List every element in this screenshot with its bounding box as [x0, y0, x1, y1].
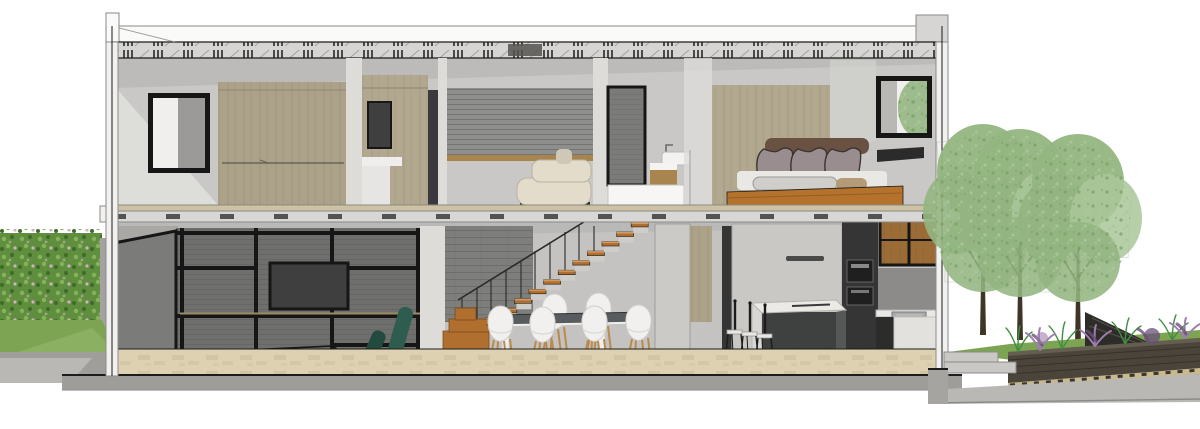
- tree-3: [1018, 134, 1142, 345]
- counter-niche: [878, 268, 936, 312]
- fridge-handle: [786, 256, 824, 261]
- wall-pier-1: [346, 58, 362, 206]
- lounge-tv: [368, 102, 391, 148]
- media-shelf: [362, 157, 402, 166]
- curb-block: [928, 368, 948, 404]
- outdoor-left: [0, 229, 116, 383]
- building: [62, 13, 962, 390]
- pivot-door: [114, 231, 176, 361]
- roof: [106, 13, 948, 58]
- oven-lower: [847, 287, 873, 305]
- intermediate-floor: [100, 205, 948, 222]
- ground-floor: [62, 349, 962, 390]
- oven-upper: [847, 260, 873, 282]
- partition-wall: [655, 224, 690, 352]
- living-tv: [270, 263, 348, 309]
- dressing-room: [118, 82, 346, 206]
- section-canvas: [0, 0, 1200, 429]
- timber-floor-strip: [118, 205, 936, 211]
- roof-fascia: [106, 26, 948, 42]
- white-guard-wall: [608, 185, 684, 207]
- duvet-roll: [753, 177, 837, 190]
- internal-door: [722, 226, 732, 356]
- roof-hatch-dark: [508, 44, 542, 56]
- stair-side-pier: [420, 226, 445, 352]
- ground-slab-band: [62, 375, 962, 390]
- architectural-section-render: [0, 0, 1200, 429]
- right-parapet-block: [916, 15, 948, 42]
- dark-side-panel: [428, 90, 438, 205]
- outdoor-right: [923, 124, 1200, 404]
